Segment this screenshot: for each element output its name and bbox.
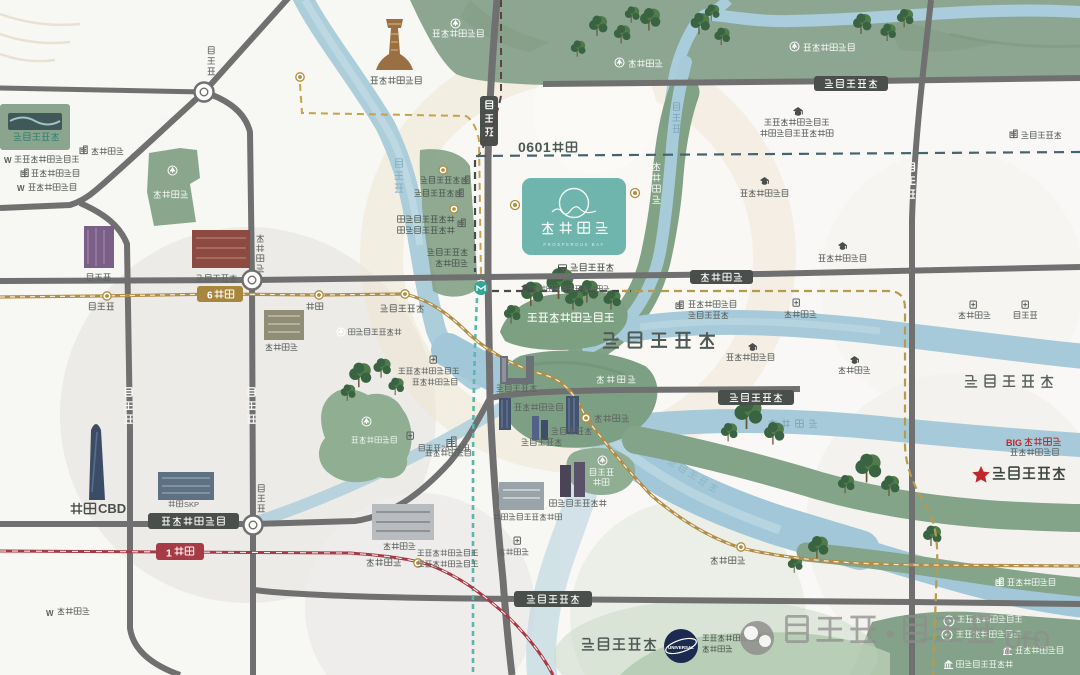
- svg-text:BIG: BIG: [1006, 438, 1022, 448]
- svg-text:1: 1: [166, 548, 172, 560]
- svg-text:263: 263: [441, 444, 454, 453]
- svg-text:W: W: [46, 609, 54, 618]
- svg-text:SKP: SKP: [184, 500, 199, 509]
- svg-text:W: W: [17, 184, 25, 193]
- svg-text:6: 6: [207, 291, 213, 302]
- svg-text:PROSPEROUS BAY: PROSPEROUS BAY: [543, 242, 604, 247]
- svg-text:W: W: [4, 156, 12, 165]
- svg-text:CBD: CBD: [98, 501, 126, 516]
- svg-text:pro: pro: [1004, 619, 1050, 655]
- svg-text:0601: 0601: [518, 139, 551, 155]
- svg-text:UNIVERSAL: UNIVERSAL: [668, 645, 694, 650]
